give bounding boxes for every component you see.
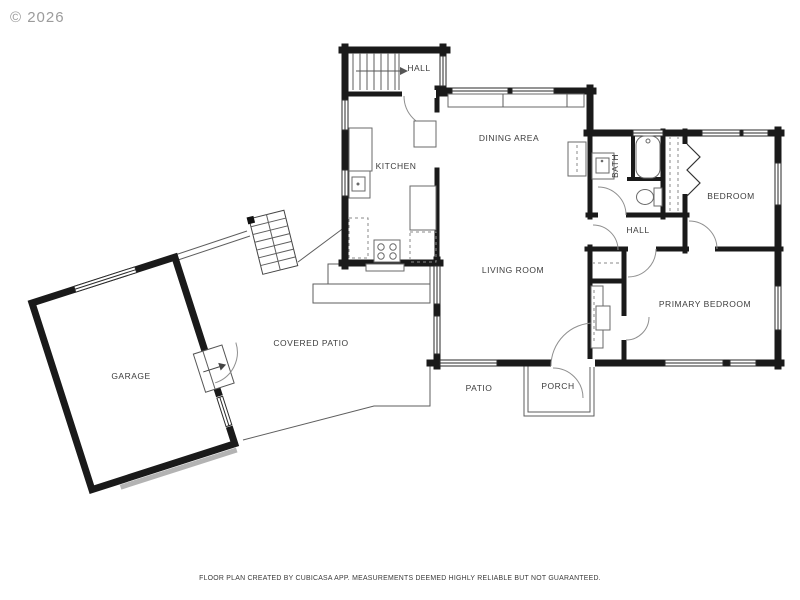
room-label-primary-bedroom: PRIMARY BEDROOM [659, 299, 751, 309]
room-label-dining-area: DINING AREA [479, 133, 539, 143]
window [730, 360, 756, 366]
room-label-hall-upper: HALL [407, 63, 430, 73]
window [434, 266, 440, 304]
window [702, 130, 740, 136]
bedroom-closet-rail [670, 136, 678, 212]
kitchen-appliance [410, 232, 436, 262]
window [440, 360, 497, 366]
window [342, 170, 348, 196]
room-label-covered-patio: COVERED PATIO [273, 338, 348, 348]
room-label-garage: GARAGE [111, 371, 150, 381]
kitchen-cabinet [414, 121, 436, 147]
window [665, 360, 723, 366]
toilet [637, 188, 663, 206]
window [452, 88, 508, 94]
hall-door-arc [593, 225, 618, 250]
kitchen-counter [410, 186, 436, 230]
room-label-patio: PATIO [466, 383, 493, 393]
floor-plan-canvas: HALL KITCHEN DINING AREA BATH BEDROOM HA… [0, 0, 800, 600]
disclaimer-text: FLOOR PLAN CREATED BY CUBICASA APP. MEAS… [199, 575, 601, 582]
bathtub [636, 136, 660, 178]
exterior-staircase [247, 208, 298, 274]
room-label-bedroom: BEDROOM [707, 191, 754, 201]
kitchen-fixtures [349, 121, 436, 271]
copyright-watermark: © 2026 [10, 9, 65, 26]
window [342, 100, 348, 130]
room-label-porch: PORCH [541, 381, 574, 391]
upper-hall-staircase [353, 53, 408, 90]
kitchen-counter [349, 128, 372, 171]
window [775, 163, 781, 205]
window [440, 56, 446, 86]
window [775, 286, 781, 330]
floor-plan: HALL KITCHEN DINING AREA BATH BEDROOM HA… [0, 0, 800, 600]
window [743, 130, 768, 136]
room-label-hall-main: HALL [626, 225, 649, 235]
kitchen-sink [349, 171, 370, 198]
primary-bedroom-door-arc [628, 249, 656, 277]
room-label-kitchen: KITCHEN [376, 161, 417, 171]
window [512, 88, 554, 94]
stove [366, 240, 404, 271]
room-label-living-room: LIVING ROOM [482, 265, 544, 275]
primary-closet-door-arc [626, 317, 649, 340]
bath-fixtures [592, 136, 662, 206]
bath-door-arc [598, 187, 626, 215]
fireplace [568, 142, 586, 176]
window [434, 316, 440, 354]
window [633, 130, 663, 136]
primary-closet-shelving [591, 286, 610, 348]
dining-sideboard [448, 94, 584, 107]
bedroom-door-arc [689, 221, 717, 249]
room-label-bath: BATH [610, 154, 620, 178]
dishwasher [349, 218, 368, 258]
